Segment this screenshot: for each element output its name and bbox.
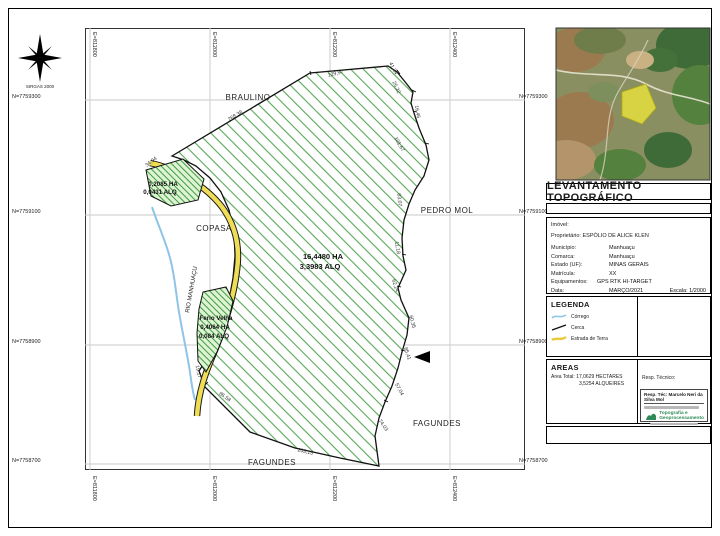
parcel-b-name: Ferio Velha <box>199 315 233 322</box>
equipamentos-label: Equipamentos: <box>551 278 597 287</box>
legend-side-empty-box <box>637 296 711 357</box>
north-arrow-icon <box>18 34 62 82</box>
property-info-box: Imóvel: Proprietário: ESPÓLIO DE ALICE K… <box>546 217 711 294</box>
neighbor-label-bottom: FAGUNDES <box>248 458 296 467</box>
parcel-b-area-ha: 0,4064 HA <box>200 324 230 331</box>
data-label: Data: <box>551 287 609 296</box>
easting-label-top: E=812200 <box>331 32 337 57</box>
easting-label-top: E=811800 <box>91 32 97 57</box>
brand-text: Topografia e Geoprocessamento <box>659 411 704 421</box>
resp-credentials-blur <box>644 406 699 409</box>
northing-label-right: N=7759300 <box>519 94 548 100</box>
info-row-value: Manhuaçu <box>609 253 635 262</box>
info-row-label: Matrícula: <box>551 270 609 279</box>
legend-title: LEGENDA <box>551 300 633 309</box>
equipamentos-row: Equipamentos: GPS RTK HI-TARGET <box>551 278 706 287</box>
easting-label-bottom: E=812000 <box>211 476 217 501</box>
parcel-b-area-alq: 0,084 ALQ <box>199 333 229 340</box>
info-row-value: XX <box>609 270 616 279</box>
empty-row <box>546 203 711 214</box>
neighbor-label-bottom-right: FAGUNDES <box>413 419 461 428</box>
north-arrow-caption: SIRGAS 2000 <box>26 84 55 89</box>
northing-label-left: N=7759100 <box>12 209 41 215</box>
trees-logo-icon <box>644 411 656 421</box>
easting-label-bottom: E=812400 <box>451 476 457 501</box>
resp-name: Resp. Téc: Marcelo Neri da Silva Mol <box>644 392 704 404</box>
dimension-label: 85,41 <box>402 347 412 361</box>
cerca-line-icon <box>551 324 567 331</box>
areas-total-line: Area Total: 17,0629 HECTARES <box>551 374 633 381</box>
main-parcel-area-alq: 3,3983 ALQ <box>300 262 341 271</box>
info-row-label: Município: <box>551 244 609 253</box>
legend-label: Cerca <box>571 325 584 331</box>
legend-box: LEGENDA Córrego Cerca Estrada de Terra <box>546 296 638 357</box>
easting-label-bottom: E=811800 <box>91 476 97 501</box>
river-label: RIO MANHUAÇU <box>185 266 199 313</box>
survey-sheet: SIRGAS 2000 BRAULINO PEDRO MOL COPASA FA… <box>0 0 720 536</box>
info-row-label: Comarca: <box>551 253 609 262</box>
parcel-a-area-alq: 0,0431 ALQ <box>143 189 177 196</box>
areas-box: AREAS Area Total: 17,0629 HECTARES 3,525… <box>546 359 638 424</box>
resp-tecnico-label: Resp. Técnico: <box>642 375 706 381</box>
northing-label-right: N=7759100 <box>519 209 548 215</box>
neighbor-label-top: BRAULINO <box>226 93 271 102</box>
northing-label-left: N=7758900 <box>12 339 41 345</box>
legend-label: Estrada de Terra <box>571 336 608 342</box>
legend-label: Córrego <box>571 314 589 320</box>
corrego-line-icon <box>551 313 567 320</box>
dimension-label: 57,04 <box>393 382 404 396</box>
info-row: Comarca: Manhuaçu <box>551 253 706 262</box>
legend-item-cerca: Cerca <box>551 324 633 331</box>
areas-title: AREAS <box>551 363 633 372</box>
northing-label-left: N=7759300 <box>12 94 41 100</box>
info-row-value: MINAS GERAIS <box>609 261 649 270</box>
dimension-label: 74,03 <box>377 418 389 432</box>
northing-label-left: N=7758700 <box>12 458 41 464</box>
parcel-a-area-ha: 0,2085 HA <box>148 181 178 188</box>
info-row-value: Manhuaçu <box>609 244 635 253</box>
northing-label-right: N=7758900 <box>519 339 548 345</box>
proprietario-value: ESPÓLIO DE ALICE KLEN <box>583 233 649 239</box>
info-row: Matrícula: XX <box>551 270 706 279</box>
page-title: LEVANTAMENTO TOPOGRÁFICO <box>547 180 710 204</box>
estrada-line-icon <box>551 335 567 342</box>
easting-label-top: E=812400 <box>451 32 457 57</box>
easting-label-top: E=812000 <box>211 32 217 57</box>
proprietario-label: Proprietário: <box>551 233 581 239</box>
neighbor-label-right: PEDRO MOL <box>421 206 474 215</box>
info-row-label: Estado (UF): <box>551 261 609 270</box>
panel-bottom-empty-box <box>546 426 711 444</box>
resp-card: Resp. Téc: Marcelo Neri da Silva Mol Top… <box>640 389 708 422</box>
neighbor-label-left: COPASA <box>196 224 232 233</box>
data-value: MARÇO/2021 <box>609 287 643 296</box>
info-row: Estado (UF): MINAS GERAIS <box>551 261 706 270</box>
satellite-image <box>536 21 720 181</box>
main-parcel-area-ha: 16,4480 HA <box>303 252 344 261</box>
legend-item-corrego: Córrego <box>551 313 633 320</box>
legend-item-estrada: Estrada de Terra <box>551 335 633 342</box>
info-row: Município: Manhuaçu <box>551 244 706 253</box>
equipamentos-value: GPS RTK HI-TARGET <box>597 278 652 287</box>
proprietario-line: Proprietário: ESPÓLIO DE ALICE KLEN <box>551 232 706 240</box>
data-escala-row: Data: MARÇO/2021 Escala: 1/2000 <box>551 287 706 296</box>
brand-row: Topografia e Geoprocessamento <box>644 411 704 421</box>
escala-value: Escala: 1/2000 <box>670 287 706 296</box>
dimension-label: 19,17 <box>194 365 203 379</box>
easting-label-bottom: E=812200 <box>331 476 337 501</box>
northing-label-right: N=7758700 <box>519 458 548 464</box>
title-block: LEVANTAMENTO TOPOGRÁFICO <box>546 183 711 200</box>
access-arrow-icon <box>414 351 430 363</box>
imovel-label: Imóvel: <box>551 221 706 229</box>
brand-line-2: Geoprocessamento <box>659 416 704 421</box>
areas-alqueires-line: 3,5254 ALQUEIRES <box>579 381 633 388</box>
